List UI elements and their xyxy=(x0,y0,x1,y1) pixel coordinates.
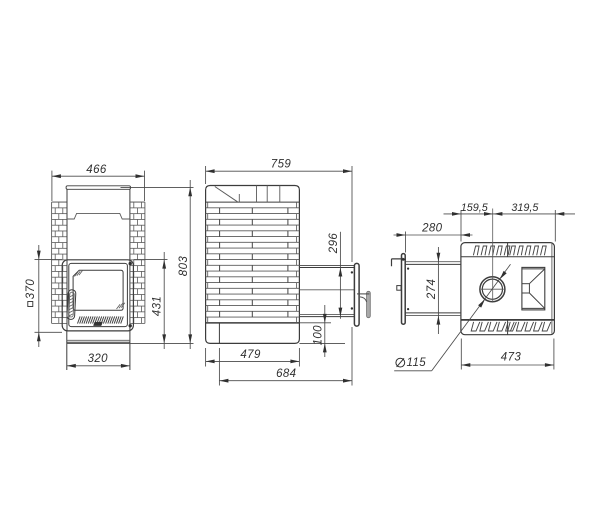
svg-text:684: 684 xyxy=(276,368,296,380)
svg-text:100: 100 xyxy=(313,325,325,346)
svg-text:479: 479 xyxy=(240,349,261,361)
svg-text:274: 274 xyxy=(426,279,438,300)
svg-text:759: 759 xyxy=(271,159,292,171)
svg-text:803: 803 xyxy=(178,256,190,277)
svg-text:466: 466 xyxy=(86,164,107,176)
svg-text:431: 431 xyxy=(152,296,164,316)
svg-text:280: 280 xyxy=(421,222,443,234)
svg-text:473: 473 xyxy=(501,351,522,363)
svg-text:319,5: 319,5 xyxy=(511,202,539,214)
svg-text:115: 115 xyxy=(407,357,427,369)
svg-text:296: 296 xyxy=(328,233,340,255)
svg-text:320: 320 xyxy=(88,353,109,365)
svg-text:159,5: 159,5 xyxy=(461,202,489,214)
svg-text:370: 370 xyxy=(25,279,37,300)
